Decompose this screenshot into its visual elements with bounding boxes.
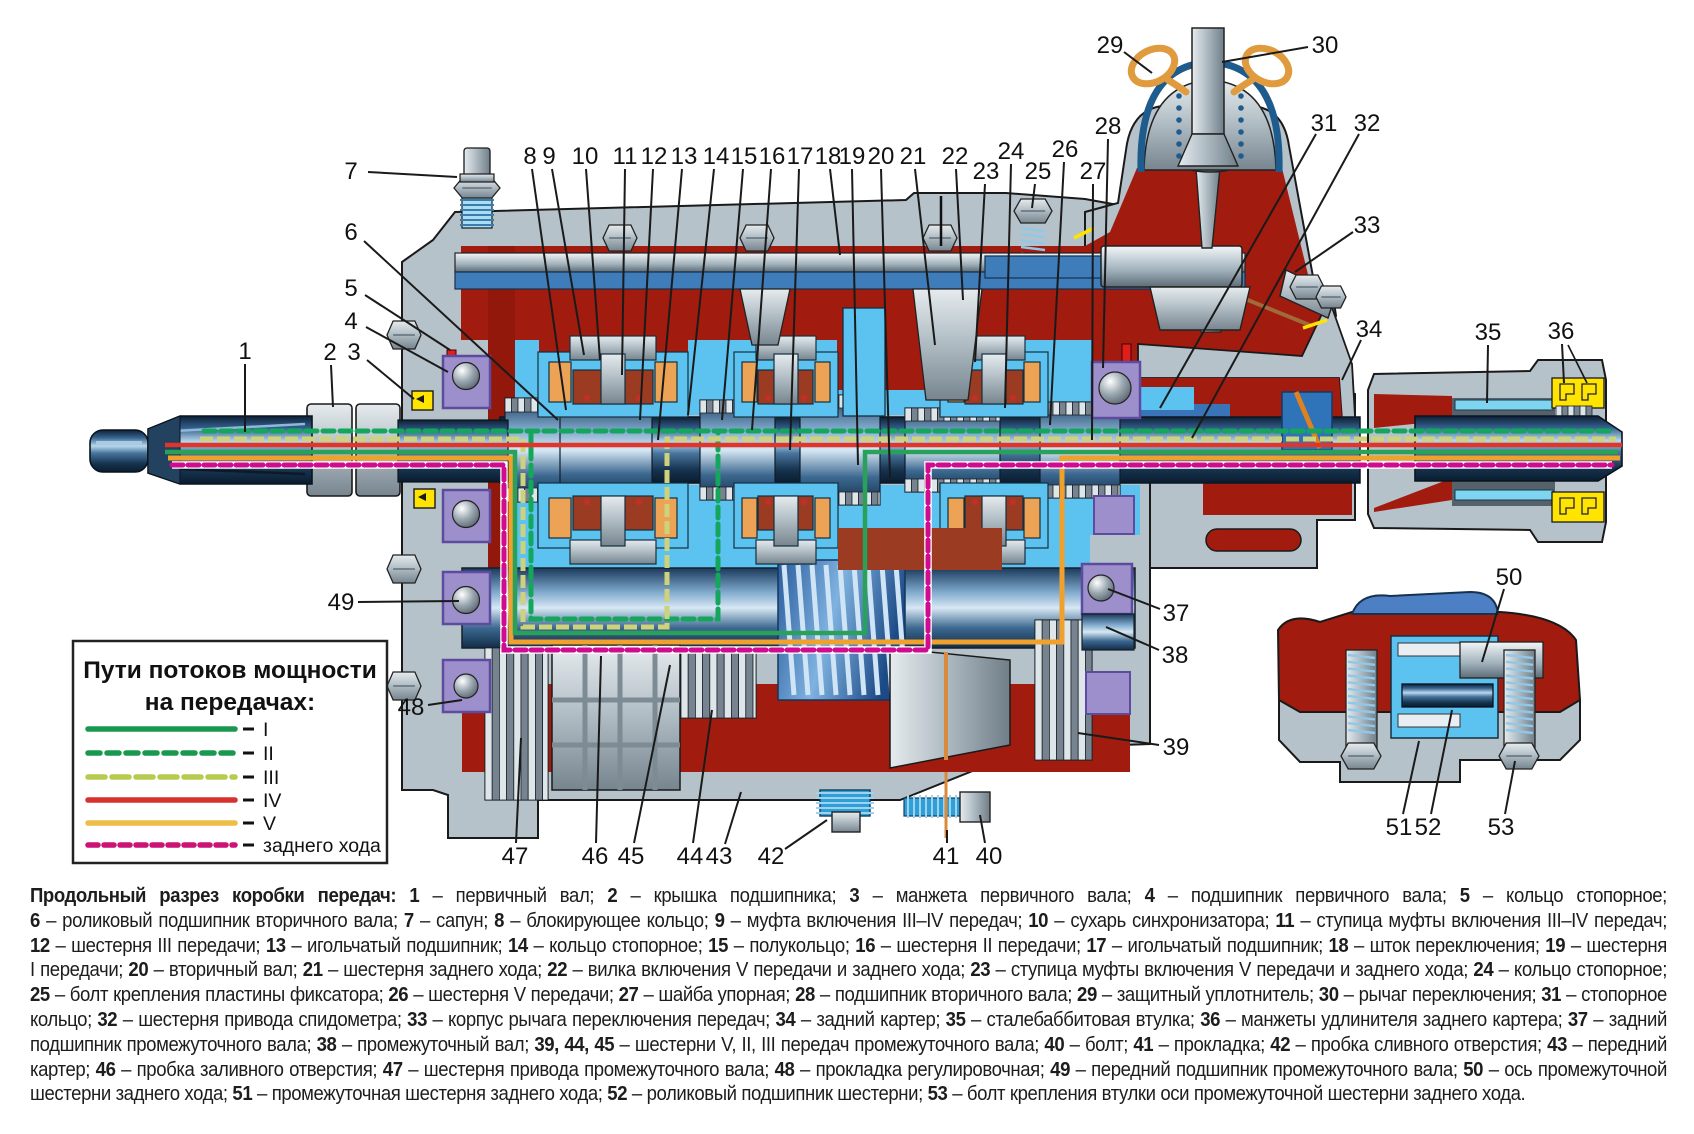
svg-text:14: 14 — [703, 143, 730, 170]
svg-text:12: 12 — [641, 143, 668, 170]
svg-text:3: 3 — [347, 339, 360, 366]
svg-text:10: 10 — [572, 143, 599, 170]
svg-text:2: 2 — [323, 339, 336, 366]
svg-text:44: 44 — [677, 843, 704, 870]
svg-text:33: 33 — [1354, 212, 1381, 239]
svg-text:49: 49 — [328, 589, 355, 616]
svg-text:II: II — [263, 743, 274, 765]
svg-text:IV: IV — [263, 790, 281, 812]
svg-text:V: V — [263, 813, 276, 835]
svg-text:25: 25 — [1025, 158, 1052, 185]
svg-text:45: 45 — [618, 843, 645, 870]
svg-text:26: 26 — [1052, 136, 1079, 163]
svg-text:22: 22 — [942, 143, 969, 170]
svg-text:11: 11 — [613, 143, 638, 170]
svg-text:на передачах:: на передачах: — [145, 689, 315, 716]
svg-text:31: 31 — [1311, 110, 1338, 137]
svg-text:5: 5 — [344, 275, 357, 302]
svg-text:18: 18 — [815, 143, 842, 170]
svg-text:34: 34 — [1356, 316, 1383, 343]
svg-text:I: I — [263, 719, 268, 741]
svg-text:47: 47 — [502, 843, 529, 870]
svg-text:35: 35 — [1475, 319, 1502, 346]
svg-text:4: 4 — [344, 308, 357, 335]
svg-text:8: 8 — [523, 143, 536, 170]
svg-text:38: 38 — [1162, 642, 1189, 669]
svg-text:42: 42 — [758, 843, 785, 870]
svg-text:51: 51 — [1386, 814, 1413, 841]
svg-text:20: 20 — [868, 143, 895, 170]
svg-text:36: 36 — [1548, 318, 1575, 345]
svg-text:заднего хода: заднего хода — [263, 835, 381, 857]
svg-text:39: 39 — [1163, 734, 1190, 761]
svg-text:6: 6 — [344, 219, 357, 246]
svg-text:13: 13 — [671, 143, 698, 170]
svg-text:32: 32 — [1354, 110, 1381, 137]
svg-text:50: 50 — [1496, 564, 1523, 591]
svg-text:7: 7 — [344, 158, 357, 185]
svg-text:16: 16 — [759, 143, 786, 170]
svg-text:43: 43 — [706, 843, 733, 870]
svg-text:Пути потоков мощности: Пути потоков мощности — [83, 657, 377, 684]
svg-text:23: 23 — [973, 158, 1000, 185]
svg-text:29: 29 — [1097, 32, 1124, 59]
svg-text:37: 37 — [1163, 600, 1190, 627]
svg-text:1: 1 — [238, 338, 251, 365]
svg-text:41: 41 — [933, 843, 960, 870]
svg-text:28: 28 — [1095, 113, 1122, 140]
svg-text:48: 48 — [398, 694, 425, 721]
svg-text:17: 17 — [787, 143, 814, 170]
svg-text:III: III — [263, 767, 279, 789]
svg-text:19: 19 — [839, 143, 866, 170]
svg-text:52: 52 — [1415, 814, 1442, 841]
svg-text:24: 24 — [998, 138, 1025, 165]
svg-text:40: 40 — [976, 843, 1003, 870]
svg-text:46: 46 — [582, 843, 609, 870]
svg-text:9: 9 — [542, 143, 555, 170]
svg-text:53: 53 — [1488, 814, 1515, 841]
svg-text:21: 21 — [900, 143, 927, 170]
svg-text:30: 30 — [1312, 32, 1339, 59]
svg-text:27: 27 — [1080, 158, 1107, 185]
svg-text:15: 15 — [731, 143, 758, 170]
